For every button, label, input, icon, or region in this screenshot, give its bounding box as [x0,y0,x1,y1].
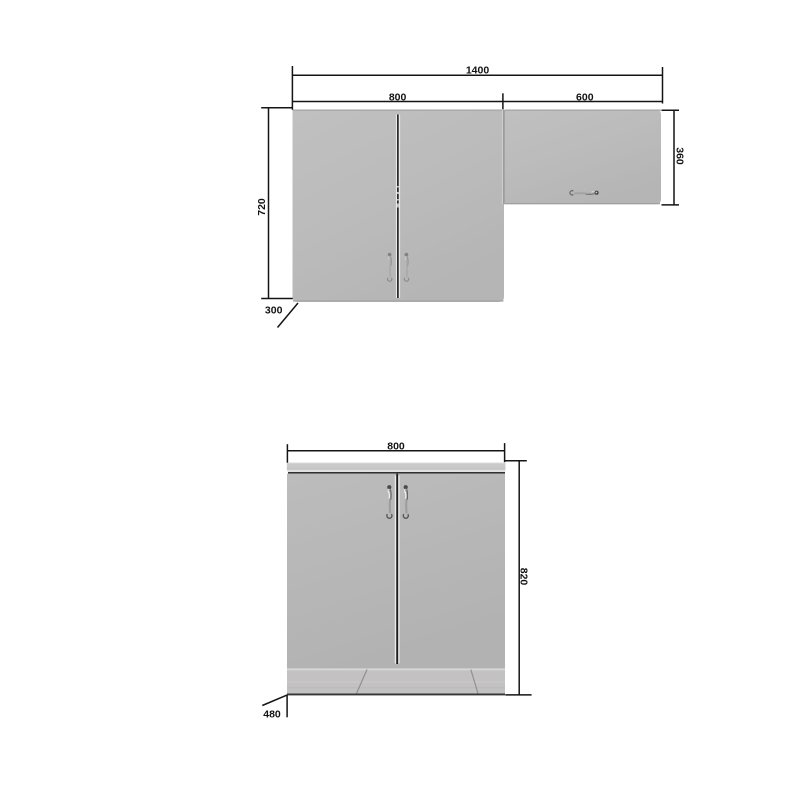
svg-text:360: 360 [674,147,686,165]
svg-text:1400: 1400 [466,64,490,76]
svg-text:480: 480 [263,708,281,720]
svg-text:800: 800 [387,441,405,453]
svg-text:300: 300 [265,305,283,317]
svg-text:820: 820 [517,568,529,586]
svg-text:720: 720 [256,198,268,216]
svg-text:800: 800 [389,92,407,104]
svg-text:600: 600 [576,92,594,104]
